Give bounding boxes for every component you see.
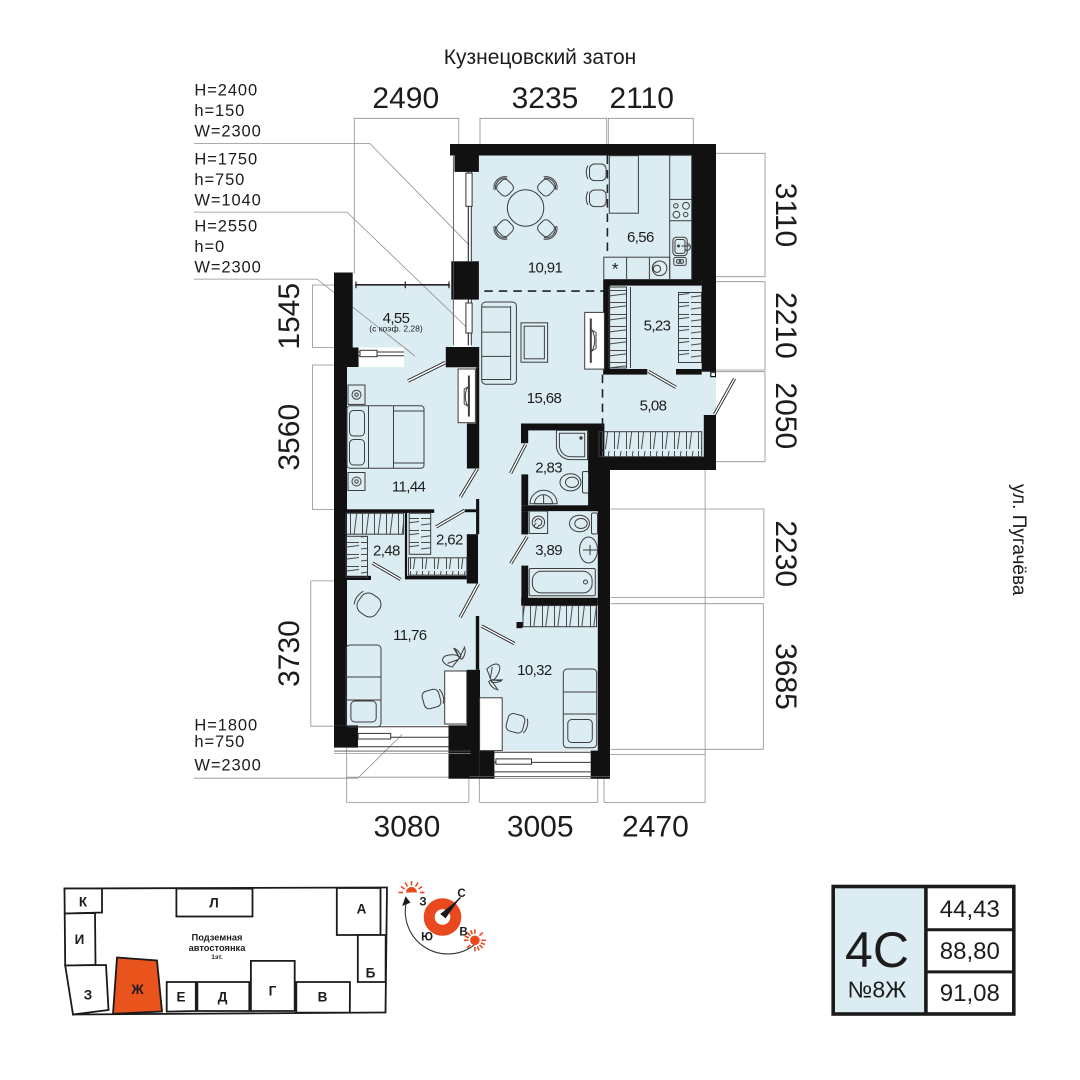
svg-text:3005: 3005 — [507, 811, 574, 844]
svg-text:Б: Б — [366, 966, 376, 981]
svg-text:И: И — [75, 932, 85, 947]
svg-text:2,48: 2,48 — [373, 543, 400, 560]
svg-text:3560: 3560 — [273, 404, 306, 471]
svg-text:88,80: 88,80 — [940, 938, 1000, 965]
svg-text:W=2300: W=2300 — [194, 757, 261, 775]
svg-text:Кузнецовский затон: Кузнецовский затон — [444, 46, 637, 69]
svg-text:15,68: 15,68 — [527, 390, 562, 407]
svg-text:*: * — [612, 260, 619, 279]
svg-text:2110: 2110 — [609, 82, 674, 115]
svg-text:№8Ж: №8Ж — [848, 977, 907, 1003]
svg-text:3685: 3685 — [769, 643, 802, 710]
svg-text:Е: Е — [176, 990, 185, 1005]
svg-text:2230: 2230 — [769, 520, 802, 587]
svg-text:2490: 2490 — [372, 82, 439, 115]
svg-text:В: В — [318, 990, 328, 1005]
svg-text:Д: Д — [218, 990, 228, 1005]
svg-text:h=750: h=750 — [194, 171, 245, 189]
svg-text:З: З — [419, 897, 426, 909]
svg-text:91,08: 91,08 — [940, 980, 1000, 1007]
svg-text:К: К — [79, 895, 88, 910]
svg-text:W=1040: W=1040 — [194, 192, 261, 210]
svg-text:3235: 3235 — [512, 82, 579, 115]
svg-text:С: С — [457, 888, 465, 900]
svg-text:З: З — [84, 988, 92, 1003]
svg-text:H=1750: H=1750 — [194, 151, 258, 169]
svg-text:2,83: 2,83 — [535, 460, 562, 477]
svg-text:2210: 2210 — [769, 292, 802, 359]
svg-text:4С: 4С — [845, 922, 909, 978]
svg-text:1эт.: 1эт. — [211, 954, 223, 961]
svg-text:11,44: 11,44 — [392, 479, 426, 496]
svg-text:Ю: Ю — [421, 932, 433, 944]
svg-text:11,76: 11,76 — [393, 627, 427, 644]
svg-text:H=2400: H=2400 — [194, 82, 258, 100]
svg-text:2,62: 2,62 — [436, 532, 463, 549]
svg-text:2470: 2470 — [622, 811, 689, 844]
svg-text:(с коэф. 2,28): (с коэф. 2,28) — [369, 324, 423, 334]
svg-text:А: А — [357, 902, 367, 917]
svg-text:h=750: h=750 — [194, 733, 245, 751]
svg-text:h=150: h=150 — [194, 102, 245, 120]
svg-text:6,56: 6,56 — [627, 229, 654, 246]
svg-text:ул. Пугачёва: ул. Пугачёва — [1008, 484, 1029, 596]
svg-text:Л: Л — [209, 896, 218, 911]
svg-text:автостоянка: автостоянка — [189, 943, 247, 953]
svg-text:Подземная: Подземная — [192, 932, 243, 942]
svg-text:2050: 2050 — [769, 382, 802, 449]
svg-text:Ж: Ж — [130, 982, 144, 997]
svg-text:44,43: 44,43 — [940, 896, 1000, 923]
svg-text:W=2300: W=2300 — [194, 259, 261, 277]
svg-text:Г: Г — [269, 984, 277, 999]
svg-text:3,89: 3,89 — [535, 542, 562, 559]
svg-text:3080: 3080 — [374, 811, 441, 844]
svg-text:W=2300: W=2300 — [194, 123, 261, 141]
svg-text:5,23: 5,23 — [644, 318, 671, 335]
svg-text:H=1800: H=1800 — [194, 717, 258, 735]
svg-text:10,32: 10,32 — [517, 662, 552, 679]
svg-text:h=0: h=0 — [194, 238, 225, 256]
svg-text:H=2550: H=2550 — [194, 218, 258, 236]
svg-text:1545: 1545 — [273, 283, 306, 350]
svg-text:3110: 3110 — [769, 183, 802, 248]
svg-text:3730: 3730 — [273, 620, 306, 687]
svg-text:10,91: 10,91 — [528, 260, 563, 277]
svg-text:5,08: 5,08 — [640, 398, 667, 415]
